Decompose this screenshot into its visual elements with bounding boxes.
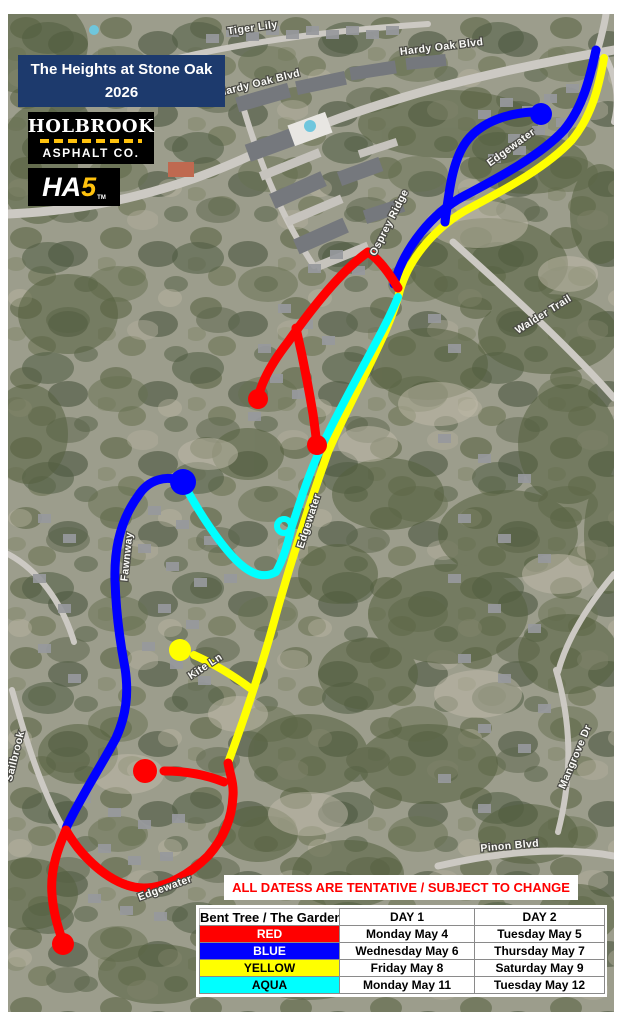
title-line1: The Heights at Stone Oak (31, 58, 213, 81)
schedule-blue-day1: Wednesday May 6 (340, 943, 475, 960)
schedule-yellow-day2: Saturday May 9 (475, 960, 605, 977)
title-box: The Heights at Stone Oak 2026 (18, 55, 225, 107)
holbrook-logo-sub: ASPHALT CO. (43, 147, 140, 159)
schedule-red-day1: Monday May 4 (340, 926, 475, 943)
schedule-row-blue: BLUE Wednesday May 6 Thursday May 7 (200, 943, 605, 960)
holbrook-logo: HOLBROOK ASPHALT CO. (28, 112, 154, 164)
schedule-header-row: Bent Tree / The Gardens DAY 1 DAY 2 (200, 909, 605, 926)
schedule-blue-day2: Thursday May 7 (475, 943, 605, 960)
route-red-culdesac-west (133, 759, 157, 783)
ha5-logo-ha: HA (42, 174, 81, 201)
route-red-blob-2 (307, 435, 327, 455)
ha5-logo-five: 5 (81, 174, 96, 201)
route-yellow-culdesac (169, 639, 191, 661)
schedule-aqua-day2: Tuesday May 12 (475, 977, 605, 994)
schedule-color-cell-yellow: YELLOW (200, 960, 340, 977)
ha5-logo: HA5TM (28, 168, 120, 206)
schedule-row-red: RED Monday May 4 Tuesday May 5 (200, 926, 605, 943)
notice-banner: ALL DATESS ARE TENTATIVE / SUBJECT TO CH… (224, 875, 578, 900)
schedule-aqua-day1: Monday May 11 (340, 977, 475, 994)
flyer-page: Tiger Lily Hardy Oak Blvd Hardy Oak Blvd… (0, 0, 622, 1024)
schedule-panel: Bent Tree / The Gardens DAY 1 DAY 2 RED … (196, 905, 607, 997)
ha5-logo-tm: TM (97, 195, 106, 201)
schedule-red-day2: Tuesday May 5 (475, 926, 605, 943)
title-line2: 2026 (105, 81, 138, 104)
schedule-yellow-day1: Friday May 8 (340, 960, 475, 977)
schedule-area-header: Bent Tree / The Gardens (200, 909, 340, 926)
schedule-col-day1: DAY 1 (340, 909, 475, 926)
route-red-blob-1 (248, 389, 268, 409)
holbrook-logo-name: HOLBROOK (28, 118, 155, 136)
pool (304, 120, 316, 132)
schedule-color-cell-red: RED (200, 926, 340, 943)
schedule-row-yellow: YELLOW Friday May 8 Saturday May 9 (200, 960, 605, 977)
holbrook-logo-dashes (40, 139, 142, 143)
route-blue-culdesac-bottom (170, 469, 196, 495)
schedule-col-day2: DAY 2 (475, 909, 605, 926)
pool (89, 25, 99, 35)
schedule-color-cell-aqua: AQUA (200, 977, 340, 994)
route-red-culdesac-south (52, 933, 74, 955)
schedule-color-cell-blue: BLUE (200, 943, 340, 960)
schedule-table: Bent Tree / The Gardens DAY 1 DAY 2 RED … (199, 908, 605, 994)
schedule-row-aqua: AQUA Monday May 11 Tuesday May 12 (200, 977, 605, 994)
sport-court (168, 162, 194, 177)
route-blue-culdesac-top (530, 103, 552, 125)
